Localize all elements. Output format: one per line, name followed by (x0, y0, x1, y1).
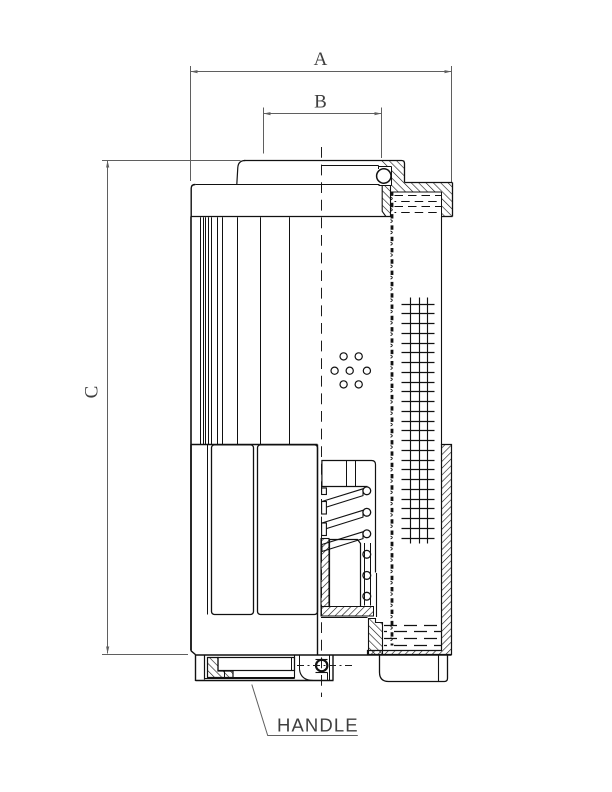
svg-text:HANDLE: HANDLE (277, 715, 359, 736)
svg-text:B: B (314, 92, 327, 113)
svg-text:A: A (314, 49, 328, 70)
svg-text:C: C (82, 386, 103, 399)
